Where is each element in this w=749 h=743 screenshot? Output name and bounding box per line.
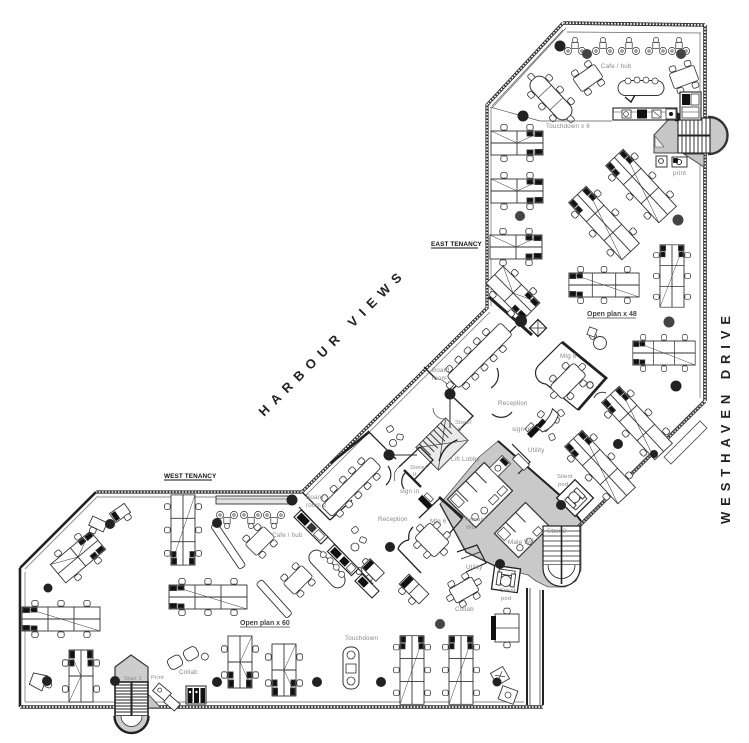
svg-text:Touchdown: Touchdown — [345, 635, 378, 642]
svg-text:Board: Board — [432, 367, 450, 374]
svg-text:Stair 1: Stair 1 — [124, 676, 142, 682]
svg-text:Open plan x 60: Open plan x 60 — [240, 620, 290, 627]
svg-text:Store/: Store/ — [410, 465, 427, 471]
svg-text:sign in: sign in — [400, 488, 420, 495]
svg-text:print: print — [673, 170, 686, 177]
svg-text:room: room — [432, 375, 447, 382]
svg-text:Stair 2: Stair 2 — [547, 528, 567, 535]
svg-text:WC: WC — [466, 525, 476, 531]
svg-text:Silent: Silent — [500, 588, 516, 594]
svg-text:Print: Print — [151, 675, 164, 681]
svg-text:EAST TENANCY: EAST TENANCY — [431, 241, 483, 248]
svg-text:Reception: Reception — [378, 516, 408, 523]
svg-text:Reception: Reception — [498, 400, 528, 407]
svg-text:Female: Female — [465, 517, 486, 523]
svg-text:Board: Board — [306, 494, 324, 501]
svg-text:Collab: Collab — [455, 606, 474, 613]
svg-text:room 2: room 2 — [306, 502, 327, 509]
svg-text:WESTHAVEN DRIVE: WESTHAVEN DRIVE — [718, 310, 733, 524]
svg-text:Store/: Store/ — [455, 420, 472, 426]
svg-text:Mtg 6: Mtg 6 — [430, 518, 447, 525]
svg-text:sign in: sign in — [512, 426, 532, 433]
svg-text:It: It — [413, 472, 417, 478]
svg-text:Silent: Silent — [557, 474, 573, 480]
svg-text:Lift Lobby: Lift Lobby — [451, 456, 481, 463]
svg-text:Cafe / hub: Cafe / hub — [272, 532, 303, 539]
svg-text:Mtg 6: Mtg 6 — [560, 353, 577, 360]
svg-text:Male WC: Male WC — [508, 539, 535, 546]
svg-text:Utility: Utility — [528, 447, 545, 454]
svg-text:WEST TENANCY: WEST TENANCY — [164, 473, 217, 480]
svg-text:Collab: Collab — [179, 669, 198, 676]
svg-text:Utility: Utility — [466, 564, 483, 571]
svg-text:Open plan x 48: Open plan x 48 — [587, 311, 637, 318]
svg-text:Touchdown x 6: Touchdown x 6 — [546, 123, 590, 130]
svg-text:pod: pod — [558, 482, 568, 488]
svg-text:pod: pod — [501, 596, 511, 602]
svg-text:Cafe / hub: Cafe / hub — [601, 63, 632, 70]
